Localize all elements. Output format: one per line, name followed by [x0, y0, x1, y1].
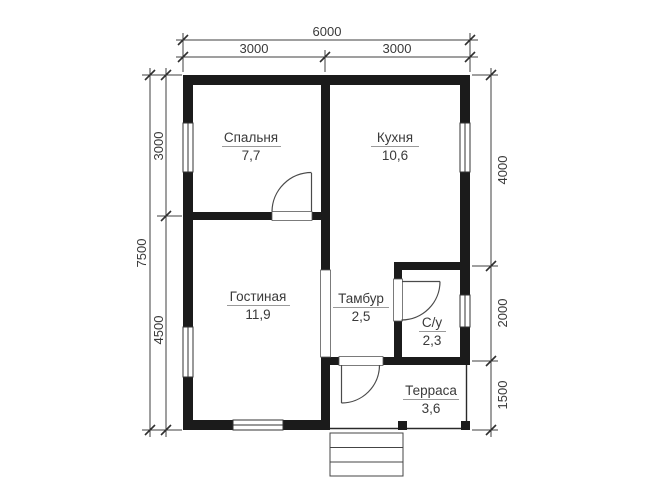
svg-text:Гостиная: Гостиная: [230, 289, 287, 304]
floor-plan: 6000 3000 3000 7500 3000 4500 4000 2000 …: [0, 0, 669, 502]
dim-top-right: 3000: [383, 41, 412, 56]
room-label-bathroom: С/у 2,3: [419, 315, 446, 348]
dimension-lines: [150, 40, 491, 437]
svg-text:Кухня: Кухня: [377, 130, 413, 145]
room-label-kitchen: Кухня 10,6: [371, 130, 419, 163]
doors: [272, 173, 440, 404]
dim-left-lower: 4500: [151, 316, 166, 345]
extension-lines: [142, 33, 498, 430]
terrace-steps: [330, 433, 403, 476]
door-openings: [272, 212, 403, 366]
bedroom-door-opening: [272, 212, 312, 221]
terrace-door-arc: [342, 365, 380, 403]
svg-text:2,3: 2,3: [423, 333, 442, 348]
svg-text:7,7: 7,7: [242, 148, 261, 163]
svg-text:Спальня: Спальня: [224, 130, 278, 145]
wall-kitchen-bath-divider: [394, 262, 460, 270]
floor-plan-canvas: 6000 3000 3000 7500 3000 4500 4000 2000 …: [0, 0, 669, 502]
room-label-living: Гостиная 11,9: [227, 289, 290, 322]
svg-text:11,9: 11,9: [245, 307, 270, 322]
room-label-terrace: Терраса 3,6: [403, 383, 459, 416]
svg-text:С/у: С/у: [422, 315, 443, 330]
room-label-vestibule: Тамбур 2,5: [333, 291, 389, 324]
bath-door-opening: [394, 279, 403, 321]
dim-right-lower: 1500: [495, 381, 510, 410]
svg-text:2,5: 2,5: [352, 309, 371, 324]
room-label-bedroom: Спальня 7,7: [222, 130, 281, 163]
dim-right-upper: 4000: [495, 156, 510, 185]
room-labels: Спальня 7,7 Кухня 10,6 Гостиная 11,9 Там…: [222, 130, 459, 416]
walls: [183, 75, 470, 430]
terrace-door-opening: [339, 357, 383, 366]
svg-text:3,6: 3,6: [422, 401, 441, 416]
dimension-ticks: [145, 35, 496, 435]
bedroom-door-arc: [272, 173, 312, 212]
dim-left-total: 7500: [134, 239, 149, 268]
dim-right-middle: 2000: [495, 299, 510, 328]
dim-top-total: 6000: [313, 24, 342, 39]
svg-text:10,6: 10,6: [382, 148, 408, 163]
living-vestibule-opening: [321, 270, 331, 357]
dim-left-upper: 3000: [151, 132, 166, 161]
wall-middle-vertical: [321, 75, 330, 430]
svg-text:Терраса: Терраса: [405, 383, 457, 398]
terrace-post-right: [461, 421, 470, 430]
svg-text:Тамбур: Тамбур: [338, 291, 384, 306]
terrace-post-left: [398, 421, 407, 430]
dim-top-left: 3000: [240, 41, 269, 56]
